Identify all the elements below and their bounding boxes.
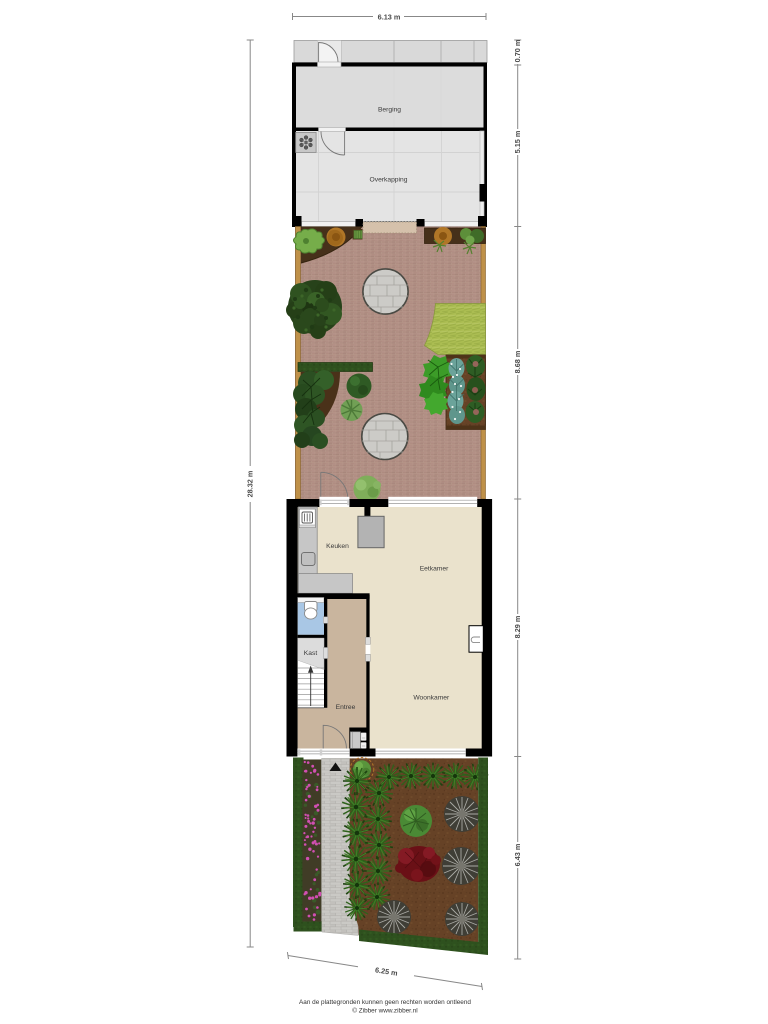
svg-text:0.70 m: 0.70 m (513, 39, 522, 62)
svg-text:5.15 m: 5.15 m (513, 130, 522, 153)
svg-text:© Zibber www.zibber.nl: © Zibber www.zibber.nl (352, 1007, 417, 1015)
svg-text:6.13 m: 6.13 m (378, 12, 401, 21)
svg-text:Woonkamer: Woonkamer (413, 695, 450, 702)
svg-text:Berging: Berging (378, 107, 401, 114)
svg-text:Aan de plattegronden kunnen ge: Aan de plattegronden kunnen geen rechten… (299, 999, 471, 1006)
svg-text:6.43 m: 6.43 m (513, 843, 522, 866)
svg-text:8.68 m: 8.68 m (513, 350, 522, 373)
svg-text:Entree: Entree (336, 704, 356, 711)
svg-text:Kast: Kast (304, 650, 318, 657)
svg-text:Overkapping: Overkapping (370, 177, 408, 184)
svg-text:Eetkamer: Eetkamer (420, 565, 449, 572)
svg-text:8.29 m: 8.29 m (513, 615, 522, 638)
svg-text:28.32 m: 28.32 m (246, 470, 255, 497)
svg-text:Keuken: Keuken (326, 543, 349, 550)
